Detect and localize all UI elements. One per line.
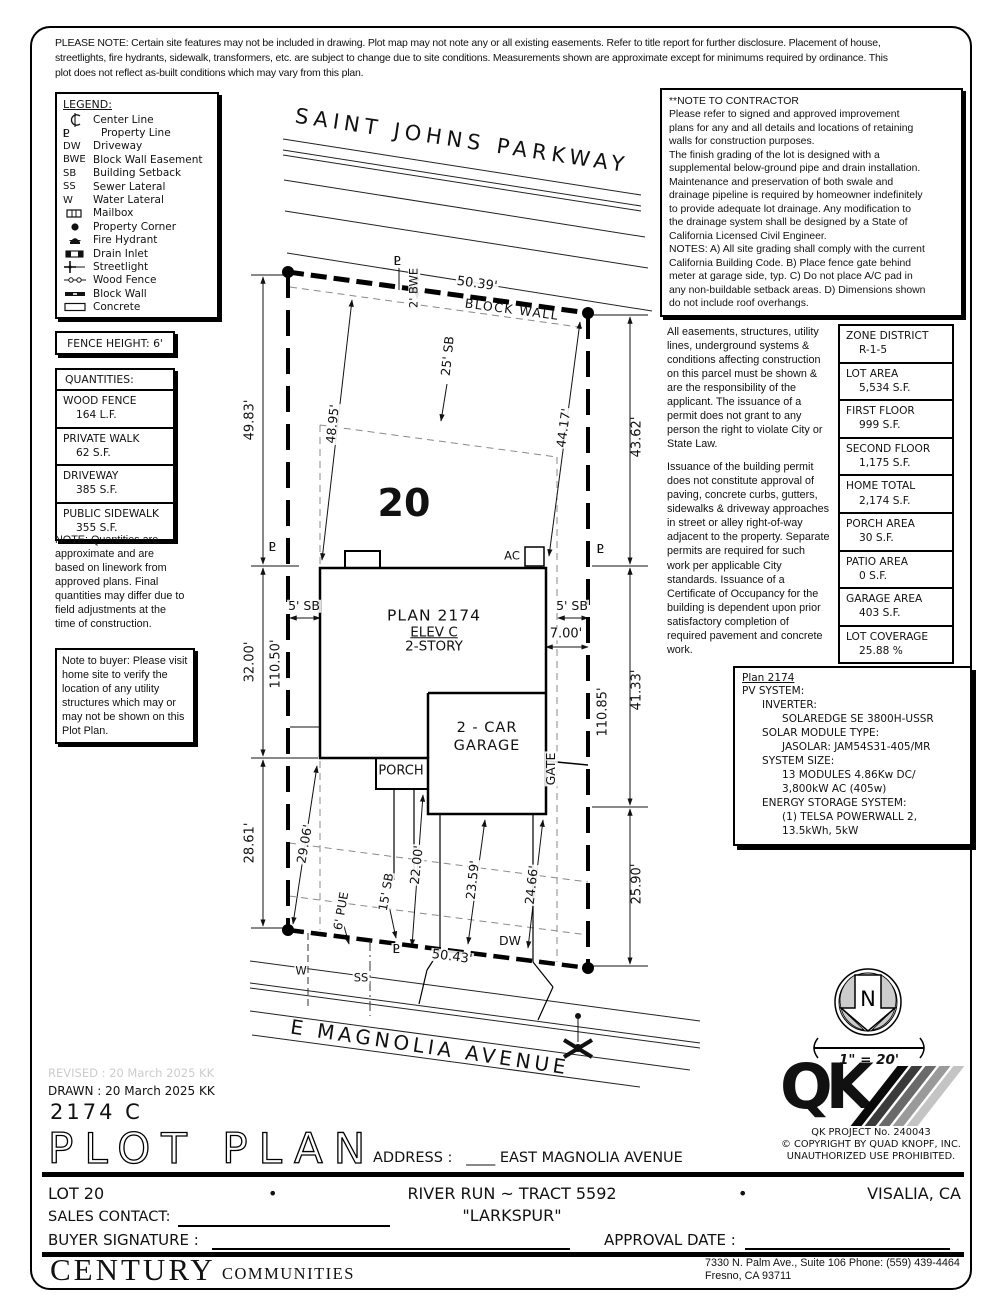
- legend-item-property-corner: Property Corner: [63, 220, 213, 233]
- pv-plan-title: Plan 2174: [742, 672, 968, 684]
- plan-code: 2174 C: [50, 1100, 143, 1124]
- pl-symbol-bottom: PL: [392, 943, 401, 955]
- pv-system-box: Plan 2174 PV SYSTEM: INVERTER: SOLAREDGE…: [733, 666, 972, 846]
- sheet-title: PLOT PLAN: [48, 1124, 376, 1173]
- easement-notes: All easements, structures, utility lines…: [667, 325, 830, 666]
- contractor-note-box: **NOTE TO CONTRACTOR Please refer to sig…: [660, 88, 963, 317]
- easement-paragraph-2: Issuance of the building permit does not…: [667, 460, 830, 656]
- legend-item-concrete: Concrete: [63, 300, 213, 313]
- legend-item-driveway: DW Driveway: [63, 140, 213, 153]
- gate-label: GATE: [545, 752, 558, 787]
- dim-right-1: 43.62': [631, 416, 644, 459]
- plot-plan-sheet: PLEASE NOTE: Certain site features may n…: [0, 0, 1003, 1305]
- bullet-separator: •: [268, 1184, 277, 1203]
- legend-item-sb: SB Building Setback: [63, 167, 213, 180]
- qk-project-number: QK PROJECT No. 240043: [776, 1128, 966, 1138]
- property-line-icon: PL: [63, 127, 101, 140]
- legend-item-bwe: BWE Block Wall Easement: [63, 153, 213, 166]
- mailbox-icon: [63, 206, 93, 220]
- approval-date-label: APPROVAL DATE :: [604, 1231, 736, 1249]
- table-row: HOME TOTAL2,174 S.F.: [840, 476, 952, 514]
- quantities-note: NOTE: Quantities are approximate and are…: [55, 533, 185, 631]
- dim-5sb-left: 5' SB: [287, 600, 321, 613]
- dim-right-2: 41.33': [631, 669, 644, 712]
- community-name: "LARKSPUR": [312, 1206, 712, 1225]
- north-arrow: N: [835, 969, 901, 1035]
- pl-symbol-left: PL: [268, 541, 277, 553]
- legend-item-drain-inlet: Drain Inlet: [63, 247, 213, 260]
- block-wall-icon: [63, 287, 93, 301]
- legend-item-property-line: PL Property Line: [63, 126, 213, 139]
- table-row: DRIVEWAY385 S.F.: [57, 466, 173, 504]
- house-outline: [320, 547, 546, 814]
- garage-label-2: GARAGE: [453, 739, 522, 754]
- legend-title: LEGEND:: [63, 98, 213, 111]
- pl-symbol-top: PL: [393, 255, 402, 267]
- concrete-icon: [63, 300, 93, 314]
- company-address-line-1: 7330 N. Palm Ave., Suite 106 Phone: (559…: [705, 1258, 960, 1269]
- quantities-title: QUANTITIES:: [57, 370, 173, 391]
- legend-box: LEGEND: Center Line PL Property Line DW …: [55, 92, 219, 319]
- qk-notice: UNAUTHORIZED USE PROHIBITED.: [776, 1152, 966, 1162]
- company-address-line-2: Fresno, CA 93711: [705, 1271, 791, 1282]
- legend-item-mailbox: Mailbox: [63, 207, 213, 220]
- legend-item-streetlight: Streetlight: [63, 260, 213, 273]
- legend-item-ss: SS Sewer Lateral: [63, 180, 213, 193]
- city-label: VISALIA, CA: [867, 1184, 961, 1203]
- pl-symbol-right: PL: [596, 543, 605, 555]
- dw-label: DW: [498, 935, 522, 948]
- sales-contact-field: [178, 1225, 390, 1227]
- dim-left-pl-length: 110.50': [270, 638, 283, 689]
- lot-number: 20: [377, 484, 432, 522]
- buyer-signature-label: BUYER SIGNATURE :: [48, 1231, 199, 1249]
- bullet-separator: •: [738, 1184, 747, 1203]
- address-value: ____ EAST MAGNOLIA AVENUE: [466, 1150, 683, 1166]
- qk-logo-block: QK QK PROJECT No. 240043 © COPYRIGHT BY …: [776, 1064, 966, 1172]
- dim-bwe: 2' BWE: [408, 267, 420, 309]
- zone-area-table: ZONE DISTRICTR-1-5 LOT AREA5,534 S.F. FI…: [838, 324, 954, 664]
- dim-left-2: 32.00': [244, 641, 257, 684]
- company-name-sub: COMMUNITIES: [222, 1266, 355, 1283]
- table-row: PATIO AREA0 S.F.: [840, 552, 952, 590]
- legend-item-wood-fence: Wood Fence: [63, 274, 213, 287]
- legend-item-centerline: Center Line: [63, 113, 213, 126]
- streetlight-symbol: [564, 1014, 592, 1058]
- approval-date-field: [745, 1248, 950, 1250]
- quantities-box: QUANTITIES: WOOD FENCE164 L.F. PRIVATE W…: [55, 368, 175, 541]
- garage-label-1: 2 - CAR: [456, 721, 519, 736]
- dim-garage-to-pl: 7.00': [549, 628, 584, 641]
- drain-inlet-icon: [63, 247, 93, 261]
- dim-left-1: 49.83': [244, 399, 257, 442]
- window-bay: [345, 551, 380, 568]
- property-corner-icon: [63, 220, 93, 234]
- easement-paragraph-1: All easements, structures, utility lines…: [667, 325, 830, 451]
- tract-label: RIVER RUN ~ TRACT 5592: [312, 1184, 712, 1203]
- plan-story: 2-STORY: [404, 640, 464, 654]
- pv-system-details: PV SYSTEM: INVERTER: SOLAREDGE SE 3800H-…: [742, 685, 968, 838]
- legend-item-fire-hydrant: Fire Hydrant: [63, 234, 213, 247]
- centerline-icon: [63, 113, 93, 127]
- sales-contact-label: SALES CONTACT:: [48, 1209, 171, 1225]
- wood-fence-icon: [63, 273, 93, 287]
- fence-height-box: FENCE HEIGHT: 6': [55, 331, 175, 355]
- buyer-note-box: Note to buyer: Please visit home site to…: [55, 648, 195, 744]
- ac-label: AC: [503, 550, 521, 562]
- qk-copyright: © COPYRIGHT BY QUAD KNOPF, INC.: [776, 1140, 966, 1150]
- table-row: ZONE DISTRICTR-1-5: [840, 326, 952, 364]
- leader-arrows: [344, 384, 447, 944]
- water-lateral-label: W: [294, 965, 307, 977]
- revised-date: REVISED : 20 March 2025 KK: [48, 1066, 214, 1080]
- dim-5sb-right: 5' SB: [555, 600, 589, 613]
- qk-logo: QK: [780, 1056, 867, 1118]
- divider-bar: [42, 1172, 964, 1177]
- table-row: FIRST FLOOR999 S.F.: [840, 401, 952, 439]
- table-row: PORCH AREA30 S.F.: [840, 514, 952, 552]
- table-row: WOOD FENCE164 L.F.: [57, 391, 173, 429]
- table-row: LOT AREA5,534 S.F.: [840, 364, 952, 402]
- ac-pad: [525, 547, 544, 566]
- table-row: LOT COVERAGE25.88 %: [840, 627, 952, 663]
- contractor-note-title: **NOTE TO CONTRACTOR: [669, 95, 957, 108]
- table-row: GARAGE AREA403 S.F.: [840, 589, 952, 627]
- legend-item-block-wall: Block Wall: [63, 287, 213, 300]
- table-row: PRIVATE WALK62 S.F.: [57, 429, 173, 467]
- drawn-date: DRAWN : 20 March 2025 KK: [48, 1084, 215, 1098]
- company-name: CENTURY: [50, 1254, 216, 1285]
- lot-label: LOT 20: [48, 1184, 104, 1203]
- dim-right-pl-length: 110.85': [597, 686, 610, 737]
- porch-label: PORCH: [377, 765, 424, 778]
- buyer-signature-field: [212, 1248, 570, 1250]
- dim-left-3: 28.61': [244, 822, 257, 865]
- address-line: ADDRESS : ____ EAST MAGNOLIA AVENUE: [373, 1150, 683, 1166]
- plan-name: PLAN 2174: [386, 608, 482, 624]
- fire-hydrant-icon: [63, 233, 93, 247]
- contractor-note-body: Please refer to signed and approved impr…: [669, 108, 957, 310]
- legend-item-water: W Water Lateral: [63, 193, 213, 206]
- north-letter: N: [860, 987, 876, 1011]
- address-label: ADDRESS :: [373, 1150, 452, 1166]
- table-row: SECOND FLOOR1,175 S.F.: [840, 439, 952, 477]
- dim-right-3: 25.90': [631, 863, 644, 906]
- sewer-lateral-label: SS: [353, 972, 370, 984]
- streetlight-icon: [63, 260, 93, 274]
